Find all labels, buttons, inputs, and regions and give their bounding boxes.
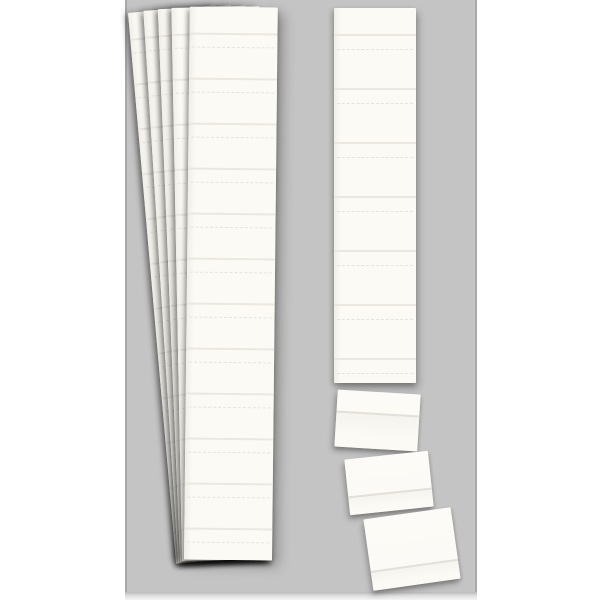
perforation-line [191, 182, 273, 184]
segment-divider [334, 304, 416, 306]
perforation-line [190, 227, 272, 229]
segment-divider [184, 528, 272, 531]
card-strip [184, 7, 278, 561]
perforation-line [189, 362, 271, 364]
segment-divider [334, 196, 416, 198]
perforation-line [337, 49, 413, 50]
insert-card [363, 507, 460, 591]
perforation-line [337, 157, 413, 158]
perforation-line [188, 497, 270, 499]
perforation-line [192, 92, 274, 94]
segment-divider [334, 34, 416, 36]
segment-divider [187, 303, 275, 306]
card-strip [334, 8, 416, 383]
perforation-line [337, 319, 413, 320]
perforation-line [337, 265, 413, 266]
insert-card [334, 390, 420, 452]
segment-divider [188, 168, 276, 171]
perforation-line [189, 407, 271, 409]
segment-divider [334, 250, 416, 252]
perforation-line [337, 211, 413, 212]
perforation-line [337, 103, 413, 104]
segment-divider [187, 258, 275, 261]
segment-divider [186, 393, 274, 396]
backdrop-floor-edge [125, 592, 477, 600]
segment-divider [185, 438, 273, 441]
segment-divider [186, 348, 274, 351]
perforation-line [191, 137, 273, 139]
segment-divider [189, 78, 277, 81]
perforation-line [190, 272, 272, 274]
segment-divider [334, 88, 416, 90]
segment-divider [189, 123, 277, 126]
segment-divider [185, 483, 273, 486]
photo-background [0, 0, 600, 600]
perforation-line [188, 452, 270, 454]
perforation-line [192, 47, 274, 49]
perforation-line [190, 317, 272, 319]
segment-divider [334, 142, 416, 144]
perforation-line [337, 373, 413, 374]
segment-divider [190, 33, 278, 36]
segment-divider [334, 358, 416, 360]
segment-divider [188, 213, 276, 216]
card-fold-band [334, 410, 419, 451]
perforation-line [187, 542, 269, 544]
insert-card [344, 451, 433, 515]
